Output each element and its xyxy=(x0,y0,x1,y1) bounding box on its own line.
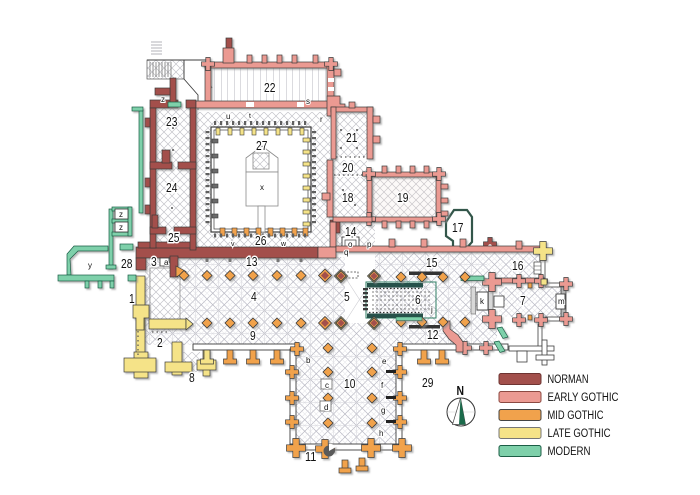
svg-text:20: 20 xyxy=(342,161,353,175)
svg-text:s: s xyxy=(306,97,310,106)
svg-text:j: j xyxy=(430,305,433,314)
svg-text:21: 21 xyxy=(346,131,357,145)
svg-text:12: 12 xyxy=(427,328,438,342)
svg-text:EARLY GOTHIC: EARLY GOTHIC xyxy=(548,390,619,404)
svg-text:4: 4 xyxy=(251,290,257,304)
svg-text:6: 6 xyxy=(415,293,421,307)
svg-text:MODERN: MODERN xyxy=(548,444,591,458)
svg-text:10: 10 xyxy=(344,377,355,391)
svg-text:24: 24 xyxy=(166,181,177,195)
svg-text:c: c xyxy=(325,381,329,390)
svg-text:11: 11 xyxy=(305,450,316,464)
svg-text:p: p xyxy=(367,240,372,249)
svg-text:8: 8 xyxy=(189,371,195,385)
svg-text:1: 1 xyxy=(129,292,135,306)
svg-text:LATE GOTHIC: LATE GOTHIC xyxy=(548,426,611,440)
svg-text:29: 29 xyxy=(422,376,433,390)
svg-text:N: N xyxy=(457,384,465,398)
svg-text:d: d xyxy=(324,403,328,412)
svg-text:16: 16 xyxy=(512,259,523,273)
svg-text:13: 13 xyxy=(246,255,257,269)
svg-text:26: 26 xyxy=(255,234,266,248)
svg-text:MID GOTHIC: MID GOTHIC xyxy=(548,408,604,422)
svg-text:h: h xyxy=(379,429,383,438)
svg-text:28: 28 xyxy=(121,257,132,271)
svg-text:27: 27 xyxy=(256,139,267,153)
svg-text:2: 2 xyxy=(157,336,163,350)
svg-text:NORMAN: NORMAN xyxy=(548,372,589,386)
svg-text:q: q xyxy=(344,248,348,257)
svg-text:o: o xyxy=(348,240,353,249)
svg-text:x: x xyxy=(260,183,264,192)
svg-text:19: 19 xyxy=(397,191,408,205)
svg-text:t: t xyxy=(249,113,251,120)
svg-text:m: m xyxy=(558,297,565,306)
svg-text:14: 14 xyxy=(345,225,356,239)
svg-text:z: z xyxy=(161,95,165,104)
svg-text:18: 18 xyxy=(342,191,353,205)
svg-text:w: w xyxy=(280,241,287,248)
svg-text:y: y xyxy=(88,261,92,270)
svg-text:7: 7 xyxy=(520,294,526,308)
svg-text:25: 25 xyxy=(168,231,179,245)
svg-text:15: 15 xyxy=(426,256,437,270)
svg-text:v: v xyxy=(231,241,235,248)
svg-text:3: 3 xyxy=(151,255,157,269)
svg-text:22: 22 xyxy=(264,81,275,95)
svg-text:g: g xyxy=(381,406,385,415)
svg-text:5: 5 xyxy=(344,290,350,304)
svg-text:b: b xyxy=(306,356,311,365)
svg-text:9: 9 xyxy=(250,329,256,343)
svg-text:e: e xyxy=(382,357,387,366)
svg-text:z: z xyxy=(119,223,123,232)
svg-text:17: 17 xyxy=(452,221,463,235)
svg-text:a: a xyxy=(164,258,169,267)
svg-text:r: r xyxy=(320,115,323,124)
svg-text:z: z xyxy=(119,210,123,219)
svg-text:u: u xyxy=(226,112,230,121)
svg-text:23: 23 xyxy=(166,115,177,129)
